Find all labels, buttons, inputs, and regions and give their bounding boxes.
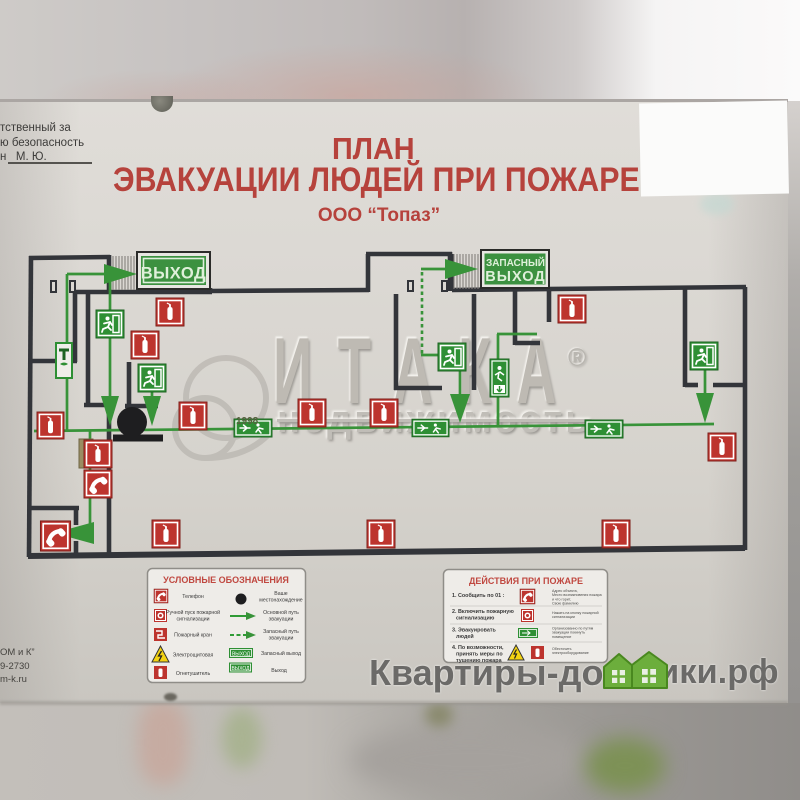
svg-text:сигнализации: сигнализации [176,617,209,623]
svg-text:1998: 1998 [236,416,259,427]
svg-text:сигнализации: сигнализации [552,615,575,619]
svg-text:Телефон: Телефон [182,594,204,600]
svg-text:ВЫХОД: ВЫХОД [231,666,250,672]
svg-text:Пожарный кран: Пожарный кран [174,632,212,639]
svg-text:людей: людей [456,633,474,640]
svg-text:Ручной пуск пожарной: Ручной пуск пожарной [166,609,220,616]
svg-text:Основной путь: Основной путь [263,609,299,616]
svg-text:ЗАПАСНЫЙ: ЗАПАСНЫЙ [486,256,545,269]
svg-text:эвакуации: эвакуации [269,617,294,623]
svg-text:Запасный выход: Запасный выход [261,650,301,657]
svg-text:Выход: Выход [271,668,287,674]
svg-text:сигнализацию: сигнализацию [456,616,495,622]
svg-text:ДЕЙСТВИЯ ПРИ ПОЖАРЕ: ДЕЙСТВИЯ ПРИ ПОЖАРЕ [469,575,583,586]
svg-text:3. Эвакуировать: 3. Эвакуировать [452,628,497,634]
svg-text:эвакуации: эвакуации [269,636,294,642]
svg-text:ВЫХОД: ВЫХОД [232,652,251,658]
svg-text:Огнетушитель: Огнетушитель [176,671,211,677]
svg-text:Электрощитовая: Электрощитовая [173,653,214,659]
svg-text:2. Включить пожарную: 2. Включить пожарную [452,609,514,615]
svg-text:Свою фамилию: Свою фамилию [552,602,579,606]
svg-text:местонахождение: местонахождение [259,598,303,604]
svg-text:1. Сообщить по 01 :: 1. Сообщить по 01 : [452,592,505,599]
svg-text:4. По возможности,: 4. По возможности, [452,645,504,651]
svg-text:помещение: помещение [552,635,571,639]
svg-text:ВЫХОД: ВЫХОД [141,265,207,283]
svg-text:Ваше: Ваше [274,591,288,597]
svg-text:Запасный путь: Запасный путь [263,628,299,635]
svg-text:УСЛОВНЫЕ ОБОЗНАЧЕНИЯ: УСЛОВНЫЕ ОБОЗНАЧЕНИЯ [163,575,289,585]
svg-text:ВЫХОД: ВЫХОД [485,269,545,285]
